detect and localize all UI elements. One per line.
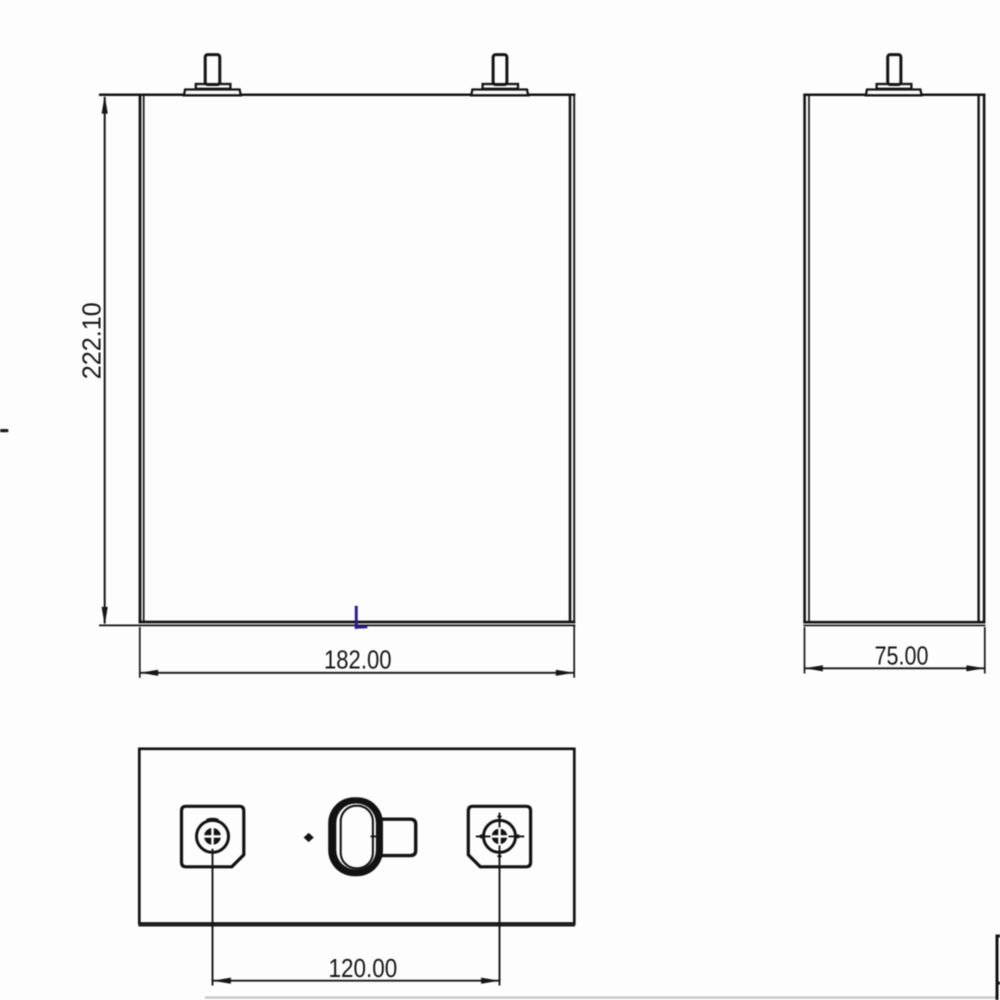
svg-text:120.00: 120.00	[329, 955, 398, 983]
svg-text:75.00: 75.00	[875, 643, 929, 671]
svg-text:182.00: 182.00	[324, 647, 392, 675]
svg-text:222.10: 222.10	[78, 302, 106, 379]
